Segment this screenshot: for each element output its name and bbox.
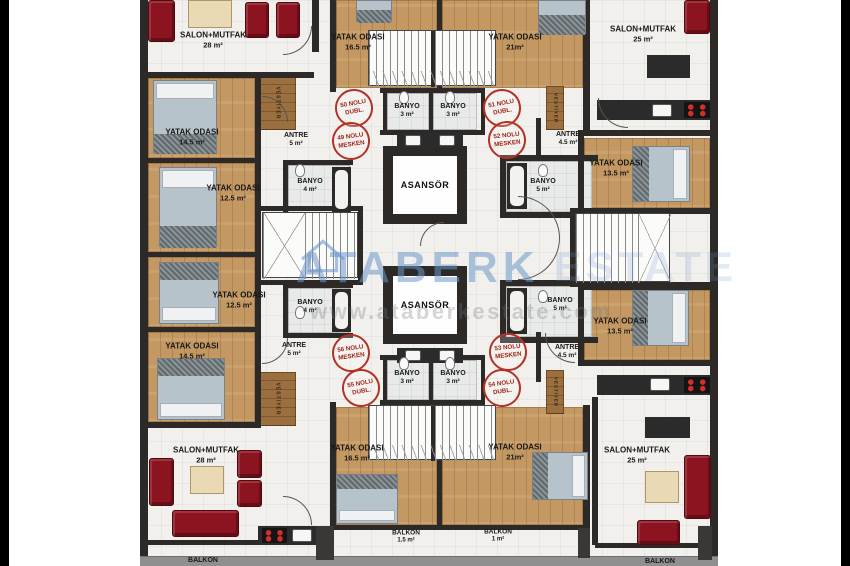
toilet bbox=[538, 164, 548, 177]
stair-winder bbox=[369, 445, 497, 461]
wall bbox=[148, 72, 314, 78]
room-label: BANYO5 m² bbox=[547, 297, 572, 313]
wall bbox=[148, 158, 258, 163]
stair-winder bbox=[369, 71, 497, 87]
stove bbox=[684, 102, 710, 118]
table bbox=[188, 0, 232, 28]
wall bbox=[140, 0, 148, 566]
floorplan-image: ASANSÖRASANSÖRSALON+MUTFAK28 m²YATAK ODA… bbox=[0, 0, 850, 566]
room-label: SALON+MUTFAK25 m² bbox=[610, 25, 676, 44]
wall bbox=[500, 280, 506, 337]
sofa bbox=[684, 455, 711, 519]
balcony-outer-wall bbox=[140, 556, 718, 566]
room-label: BALKON bbox=[188, 557, 218, 565]
bed-pillow bbox=[339, 510, 395, 521]
elevator-shaft: ASANSÖR bbox=[383, 146, 467, 224]
wall bbox=[330, 525, 583, 530]
room-label: YATAK ODASI13.5 m² bbox=[589, 159, 642, 178]
table bbox=[190, 466, 224, 494]
wall bbox=[283, 160, 353, 165]
toilet bbox=[399, 357, 409, 370]
bed-pillow bbox=[160, 403, 222, 417]
stair-treads bbox=[305, 213, 359, 279]
wall bbox=[578, 360, 712, 366]
pillar bbox=[316, 526, 334, 560]
wall bbox=[148, 252, 258, 257]
stove bbox=[262, 528, 287, 543]
sofa bbox=[245, 2, 269, 38]
wall bbox=[312, 0, 319, 52]
room-label: SALON+MUTFAK28 m² bbox=[173, 446, 239, 465]
bathtub bbox=[332, 289, 351, 332]
wall bbox=[383, 360, 387, 400]
room-label: BANYO3 m² bbox=[440, 370, 465, 386]
wall bbox=[383, 93, 387, 130]
sink bbox=[439, 135, 455, 146]
room-label: BANYO3 m² bbox=[394, 103, 419, 119]
sofa bbox=[637, 520, 680, 545]
bathtub bbox=[507, 288, 527, 334]
room-label: YATAK ODASI12.5 m² bbox=[206, 184, 259, 203]
room-label: YATAK ODASI12.5 m² bbox=[212, 291, 265, 310]
room-label: YATAK ODASI21m² bbox=[488, 443, 541, 462]
room-label: BANYO3 m² bbox=[394, 370, 419, 386]
elevator-cab: ASANSÖR bbox=[393, 276, 457, 334]
room-label: SALON+MUTFAK28 m² bbox=[180, 31, 246, 50]
wall bbox=[429, 359, 433, 400]
room-label: YATAK ODASI14.5 m² bbox=[165, 342, 218, 361]
bed bbox=[159, 262, 219, 324]
room-label: YATAK ODASI21m² bbox=[488, 33, 541, 52]
room-label: BANYO4 m² bbox=[297, 178, 322, 194]
room-label: VESTİYER bbox=[553, 93, 558, 123]
bed bbox=[356, 0, 392, 22]
room-label: BANYO4 m² bbox=[297, 299, 322, 315]
toilet bbox=[445, 357, 455, 370]
bed-pillow bbox=[672, 293, 686, 343]
staircase bbox=[575, 213, 670, 282]
room-label: ANTRE4.5 m² bbox=[556, 131, 580, 147]
bed-pillow bbox=[156, 83, 214, 99]
wall bbox=[578, 130, 712, 136]
bathroom-sink-counter bbox=[397, 133, 463, 148]
bed bbox=[159, 167, 217, 247]
sink bbox=[652, 104, 672, 117]
room-label: SALON+MUTFAK25 m² bbox=[604, 446, 670, 465]
sofa bbox=[148, 0, 175, 42]
pillar bbox=[698, 526, 712, 560]
room-label: VESTİYER bbox=[275, 87, 280, 120]
staircase bbox=[262, 212, 358, 278]
room-label: BALKON bbox=[645, 558, 675, 566]
bathtub-basin bbox=[335, 170, 348, 209]
room-label: YATAK ODASI14.5 m² bbox=[165, 128, 218, 147]
room-label: YATAK ODASI13.5 m² bbox=[593, 317, 646, 336]
room-label: BALKON1 m² bbox=[484, 529, 512, 544]
bed bbox=[336, 474, 398, 524]
sink bbox=[292, 529, 312, 542]
sofa bbox=[237, 480, 262, 507]
wall bbox=[258, 280, 363, 285]
sofa bbox=[172, 510, 239, 537]
bed-blanket bbox=[337, 475, 397, 489]
wall bbox=[592, 397, 598, 545]
room-label: YATAK ODASI16.5 m² bbox=[331, 33, 384, 52]
room-label: YATAK ODASI16.5 m² bbox=[330, 444, 383, 463]
wall bbox=[536, 332, 541, 382]
room-label: ANTRE4.5 m² bbox=[555, 344, 579, 360]
floor-plan: ASANSÖRASANSÖRSALON+MUTFAK28 m²YATAK ODA… bbox=[0, 0, 850, 566]
toilet bbox=[295, 164, 305, 177]
elevator-cab: ASANSÖR bbox=[393, 156, 457, 214]
bathtub-basin bbox=[335, 292, 348, 329]
bed-pillow bbox=[572, 455, 585, 497]
wall bbox=[500, 155, 506, 212]
stair-landing bbox=[263, 213, 305, 279]
sink bbox=[405, 135, 421, 146]
table bbox=[645, 471, 679, 503]
bed-blanket bbox=[539, 15, 585, 35]
room-label: BALKON1.5 m² bbox=[392, 530, 420, 545]
sink bbox=[650, 378, 670, 391]
elevator-shaft: ASANSÖR bbox=[383, 266, 467, 344]
wall bbox=[255, 72, 261, 428]
pillar bbox=[578, 528, 590, 558]
sofa bbox=[237, 450, 262, 478]
staircase bbox=[368, 405, 496, 460]
wall bbox=[536, 118, 541, 161]
bed-blanket bbox=[160, 226, 216, 248]
room-label: ANTRE5 m² bbox=[284, 132, 308, 148]
bed bbox=[538, 0, 586, 34]
room-label: ANTRE5 m² bbox=[282, 342, 306, 358]
bed-blanket bbox=[160, 263, 218, 280]
kitchen-counter bbox=[645, 417, 690, 438]
bathtub-basin bbox=[510, 291, 524, 331]
bed bbox=[157, 358, 225, 420]
bed-blanket bbox=[158, 359, 224, 376]
bathtub bbox=[332, 167, 351, 212]
sofa bbox=[684, 0, 710, 34]
room-label: BANYO3 m² bbox=[440, 103, 465, 119]
bed-pillow bbox=[673, 149, 687, 199]
kitchen-counter bbox=[647, 55, 690, 78]
wall bbox=[283, 283, 288, 338]
room-label: VESTİYER bbox=[275, 383, 280, 416]
sofa bbox=[149, 458, 174, 506]
wall bbox=[148, 327, 258, 332]
room-label: VESTİYER bbox=[553, 377, 558, 407]
staircase bbox=[368, 30, 496, 86]
bed-pillow bbox=[162, 307, 216, 321]
stair-landing bbox=[638, 214, 671, 283]
room-label: BANYO5 m² bbox=[530, 178, 555, 194]
bed-blanket bbox=[357, 10, 391, 23]
stove bbox=[684, 377, 710, 393]
stair-treads bbox=[576, 214, 638, 283]
wall bbox=[429, 92, 433, 130]
wall bbox=[148, 422, 260, 428]
